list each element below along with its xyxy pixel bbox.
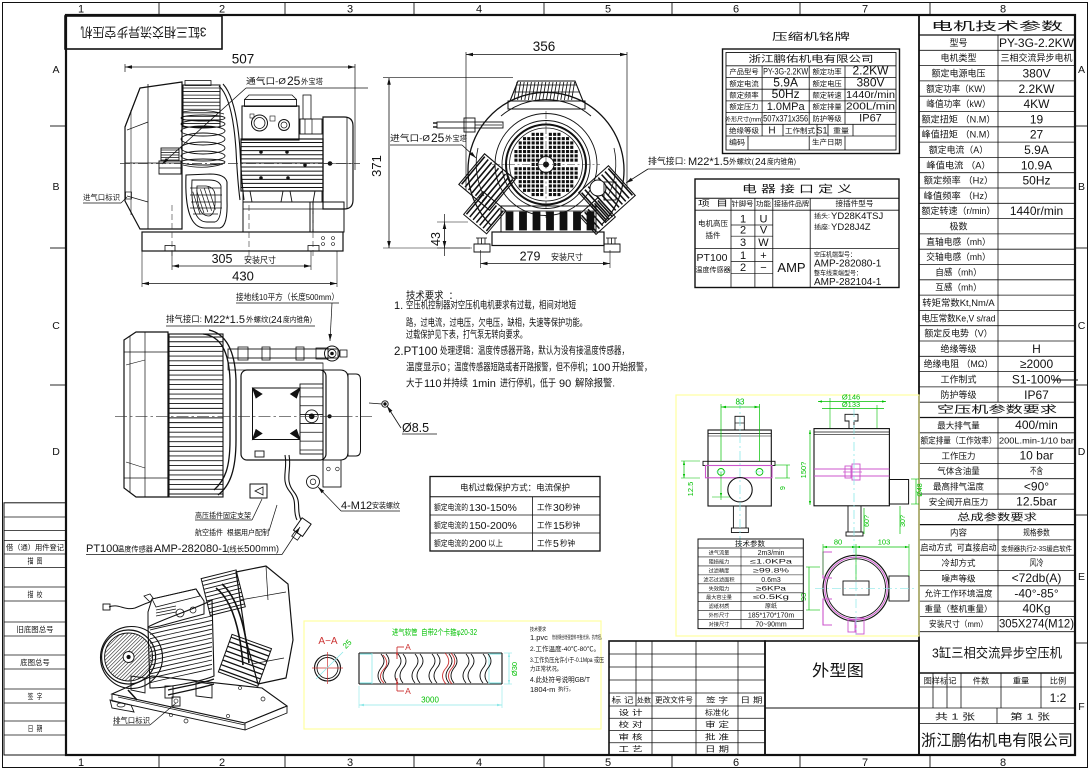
svg-text:日 期: 日 期 [741,696,763,705]
svg-text:执行。: 执行。 [558,685,574,693]
svg-text:旧底图总号: 旧底图总号 [17,625,54,634]
svg-text:比例: 比例 [1050,676,1066,686]
svg-text:进气口标识: 进气口标识 [83,192,120,202]
svg-text:排气口标识: 排气口标识 [113,715,150,725]
svg-text:6: 6 [733,757,739,769]
svg-text:507: 507 [232,52,255,67]
svg-text:描 校: 描 校 [28,590,43,599]
svg-text:70~90mm: 70~90mm [755,622,786,629]
svg-text:秒钟: 秒钟 [565,520,580,530]
svg-text:滤芯过滤面积: 滤芯过滤面积 [703,576,734,583]
svg-text:25: 25 [431,131,445,145]
svg-text:1440r/min: 1440r/min [846,89,895,101]
svg-text:压缩机铭牌: 压缩机铭牌 [772,31,851,43]
svg-text:Ø133: Ø133 [842,400,860,409]
svg-text:温度传感器: 温度传感器 [117,544,153,554]
svg-text:件数: 件数 [973,676,989,686]
svg-text:以上: 以上 [488,539,503,548]
svg-text:标 记: 标 记 [612,695,635,705]
svg-text:批 准: 批 准 [705,732,730,742]
svg-text:5: 5 [553,538,559,550]
svg-text:电压常数Ke,V s/rad: 电压常数Ke,V s/rad [922,312,996,323]
svg-text:度内锥角): 度内锥角) [283,314,312,324]
svg-text:4-M12: 4-M12 [341,500,372,512]
svg-text:2m3/min: 2m3/min [758,550,785,557]
svg-text:并持续: 并持续 [443,377,468,390]
svg-text:安装尺寸: 安装尺寸 [551,252,583,262]
svg-text:50Hz: 50Hz [1022,174,1050,188]
svg-text:额定频率: 额定频率 [729,91,758,100]
svg-text:+: + [760,250,766,262]
svg-text:D: D [52,446,60,458]
svg-text:电 器 接 口 定 义: 电 器 接 口 定 义 [742,183,852,196]
svg-text:峰值扭矩 （N.M）: 峰值扭矩 （N.M） [922,129,996,140]
svg-text:C: C [52,320,60,332]
svg-text:电机高压: 电机高压 [698,218,728,228]
svg-text:极数: 极数 [950,220,968,231]
svg-text:7: 7 [862,4,868,16]
svg-text:30?: 30? [900,515,907,527]
svg-text:最大容尘量: 最大容尘量 [706,594,732,601]
svg-text:24: 24 [271,315,283,326]
svg-text:H: H [768,126,775,137]
svg-text:滤纸材质: 滤纸材质 [709,603,730,610]
svg-text:400/min: 400/min [1015,418,1058,432]
svg-text:；温度传感器短路或者开路报警，但不停机；: ；温度传感器短路或者开路报警，但不停机； [447,361,592,374]
svg-text:外宝塔: 外宝塔 [301,76,323,86]
svg-text:额定电流的: 额定电流的 [434,538,468,548]
svg-text:浙江鹏佑机电有限公司: 浙江鹏佑机电有限公司 [749,53,874,64]
svg-text:YD28J4Z: YD28J4Z [831,222,871,233]
svg-text:电机过载保护方式：电流保护: 电机过载保护方式：电流保护 [460,483,570,493]
svg-text:10 bar: 10 bar [1019,449,1053,463]
svg-text:200L.min-1/10 bar: 200L.min-1/10 bar [999,435,1074,445]
svg-text:5: 5 [605,757,611,769]
svg-text:审 定: 审 定 [705,719,730,729]
svg-text:冷却方式: 冷却方式 [942,558,976,568]
svg-text:≥6KPa: ≥6KPa [756,586,787,592]
svg-text:日 期: 日 期 [28,724,43,733]
svg-text:外型图: 外型图 [812,662,864,680]
svg-text:安装尺寸（mm）: 安装尺寸（mm） [929,619,988,629]
svg-text:安装螺纹: 安装螺纹 [372,500,400,510]
svg-text:356: 356 [533,39,556,54]
svg-text:3: 3 [740,237,746,249]
svg-text:2: 2 [219,757,225,769]
svg-text:开始报警，: 开始报警， [612,361,652,374]
svg-text:150-200%: 150-200% [469,520,517,532]
svg-text:9: 9 [780,486,787,490]
svg-text:自感（mh）: 自感（mh） [935,266,981,277]
svg-text:原纸: 原纸 [765,602,777,610]
svg-text:8: 8 [1000,4,1006,16]
svg-text:U: U [760,214,768,226]
svg-text:371: 371 [369,155,384,177]
svg-text:阻损能力: 阻损能力 [709,558,730,565]
svg-text:80: 80 [834,538,842,547]
svg-text:A: A [1078,64,1085,76]
svg-text:AMP-282104-1: AMP-282104-1 [814,277,882,288]
svg-text:B: B [52,181,59,193]
svg-text:AMP-282080-1: AMP-282080-1 [814,259,882,270]
svg-text:整车线束端型号：: 整车线束端型号： [814,268,862,277]
svg-text:接地线10平方（长度500mm）: 接地线10平方（长度500mm） [236,292,339,302]
svg-text:19: 19 [1030,112,1044,126]
svg-text:力正常状况。: 力正常状况。 [530,665,562,673]
svg-text:更改文件号: 更改文件号 [655,695,693,705]
svg-text:<90°: <90° [1024,479,1049,493]
svg-text:3000: 3000 [421,696,439,705]
svg-text:6: 6 [733,4,739,16]
svg-text:430: 430 [232,269,254,284]
svg-text:允许工作环境温度: 允许工作环境温度 [925,589,993,599]
svg-text:过滤精度: 过滤精度 [709,567,730,574]
svg-text:型号: 型号 [950,38,968,48]
svg-text:M22*1.5: M22*1.5 [688,156,729,168]
svg-text:E: E [1078,571,1085,583]
svg-text:S1: S1 [816,126,827,136]
svg-text:103: 103 [878,538,891,547]
svg-text:100: 100 [592,362,610,374]
svg-text:对接尺寸: 对接尺寸 [709,621,730,628]
svg-text:工作: 工作 [537,538,552,548]
svg-text:工作制式: 工作制式 [785,126,815,135]
svg-text:空压机参数要求: 空压机参数要求 [937,403,1057,416]
svg-text:安全阀开启压力: 安全阀开启压力 [929,497,989,507]
svg-text:2: 2 [219,4,225,16]
svg-text:1: 1 [78,757,84,769]
svg-text:507x371x356: 507x371x356 [763,113,808,124]
svg-text:1.0MPa: 1.0MPa [767,101,806,113]
svg-text:B: B [1078,181,1085,193]
svg-text:W: W [758,237,769,249]
svg-text:秒钟: 秒钟 [560,538,575,548]
svg-text:功能: 功能 [756,199,771,208]
svg-text:气体含油量: 气体含油量 [937,466,980,476]
svg-text:失效阻力: 失效阻力 [709,585,730,592]
svg-text:额定功率（KW）: 额定功率（KW） [926,83,990,94]
svg-text:≥2000: ≥2000 [1020,357,1054,371]
svg-text:额定转速: 额定转速 [813,91,842,100]
svg-text:130-150%: 130-150% [469,502,517,514]
svg-text:外螺纹(: 外螺纹( [729,156,754,166]
svg-text:浙江鹏佑机电有限公司: 浙江鹏佑机电有限公司 [921,732,1073,750]
svg-text:A−A: A−A [318,636,338,647]
svg-text:200L/min: 200L/min [846,101,895,113]
svg-text:电机类型: 电机类型 [941,52,977,63]
svg-text:IP67: IP67 [859,113,882,125]
svg-text:工作压力: 工作压力 [942,451,976,461]
svg-text:空压机端型号：: 空压机端型号： [814,250,856,259]
svg-text:校 对: 校 对 [619,719,644,729]
svg-text:总成参数要求: 总成参数要求 [957,511,1038,523]
svg-text:标准化: 标准化 [705,707,730,717]
svg-text:185*170*170m: 185*170*170m [748,613,794,620]
svg-text:变频器执行2-3S缓启软件: 变频器执行2-3S缓启软件 [1001,544,1072,553]
svg-text:绝缘等级: 绝缘等级 [729,126,759,135]
svg-text:1440r/min: 1440r/min [1010,204,1063,218]
svg-text:150?: 150? [799,462,808,479]
svg-text:1804-m: 1804-m [530,685,555,694]
svg-text:Ø48: Ø48 [917,483,924,496]
svg-text:插件: 插件 [706,230,721,240]
svg-text:3: 3 [347,757,353,769]
svg-text:外形尺寸(mm): 外形尺寸(mm) [725,116,763,124]
svg-text:技术要求: 技术要求 [530,626,546,633]
svg-text:60?: 60? [864,515,871,527]
svg-text:3: 3 [347,4,353,16]
svg-text:Ø8.5: Ø8.5 [402,421,429,435]
svg-text:V: V [760,225,768,237]
svg-text:额定电流: 额定电流 [729,79,758,88]
svg-text:305X274(M12): 305X274(M12) [999,618,1074,630]
svg-text:F: F [1078,701,1084,713]
svg-text:IP67: IP67 [1024,388,1049,402]
svg-text:互感（mh）: 互感（mh） [935,282,981,293]
svg-text:25: 25 [287,74,301,88]
svg-text:排气接口:: 排气接口: [648,156,686,166]
svg-text:最高排气温度: 最高排气温度 [933,482,984,492]
svg-text:大于: 大于 [406,377,423,390]
svg-text:通气口-Ø: 通气口-Ø [246,76,286,86]
svg-text:额定扭矩 （N.M）: 额定扭矩 （N.M） [922,113,996,124]
svg-text:共 1 张: 共 1 张 [935,712,976,722]
svg-text:5.9A: 5.9A [1024,143,1049,157]
svg-text:10.9A: 10.9A [1021,158,1052,172]
svg-text:50Hz: 50Hz [772,87,800,101]
svg-text:3缸三相交流异步空压机: 3缸三相交流异步空压机 [932,645,1062,660]
svg-text:电机技术参数: 电机技术参数 [931,19,1064,33]
svg-text:工 艺: 工 艺 [619,745,643,754]
svg-text:4: 4 [476,757,482,769]
svg-text:规格参数: 规格参数 [1023,528,1050,538]
svg-text:380V: 380V [856,75,884,89]
svg-text:D: D [1078,446,1086,458]
svg-text:YD28K4TSJ: YD28K4TSJ [831,211,884,222]
svg-text:防护等级: 防护等级 [941,389,977,400]
svg-text:H: H [1032,342,1041,356]
svg-text:排气接口:: 排气接口: [166,314,202,324]
svg-text:200: 200 [469,538,487,550]
svg-text:绝缘电阻 （MΩ）: 绝缘电阻 （MΩ） [924,358,994,369]
svg-text:43: 43 [429,232,443,246]
svg-text:27: 27 [1030,128,1044,142]
svg-text:描 图: 描 图 [28,557,43,566]
svg-text:额定转速（r/min）: 额定转速（r/min） [922,205,996,216]
svg-text:83: 83 [736,398,745,407]
svg-text:A: A [52,64,59,76]
svg-text:管道钢丝增强塑料平整光滑，抗弯扭。: 管道钢丝增强塑料平整光滑，抗弯扭。 [552,634,604,641]
svg-text:借（通）用件登记: 借（通）用件登记 [6,543,64,552]
svg-text:工作: 工作 [537,520,552,530]
svg-text:2: 2 [740,262,746,274]
svg-text:进气流量: 进气流量 [709,549,730,556]
svg-text:额定压力: 额定压力 [729,102,758,111]
svg-text:PY-3G-2.2KW: PY-3G-2.2KW [999,36,1075,50]
svg-text:1:2: 1:2 [1050,691,1067,705]
svg-text:PT100: PT100 [697,252,728,264]
svg-text:空压机控制器对空压机电机要求有过载，相间对地短: 空压机控制器对空压机电机要求有过载，相间对地短 [406,299,576,312]
svg-text:温度显示: 温度显示 [406,361,440,374]
svg-text:PT100: PT100 [86,543,118,555]
svg-text:500: 500 [244,544,261,555]
svg-text:A: A [405,686,411,696]
svg-text:绝缘等级: 绝缘等级 [941,343,977,354]
svg-text:直轴电感（mh）: 直轴电感（mh） [926,236,990,247]
svg-text:图样标记: 图样标记 [924,676,957,686]
svg-text:项 目: 项 目 [698,199,728,208]
svg-text:工作: 工作 [537,502,552,512]
svg-text:审 核: 审 核 [619,732,644,742]
svg-text:产品型号: 产品型号 [729,67,758,76]
svg-text:额定排量（工作效率）: 额定排量（工作效率） [921,436,997,446]
svg-text:0: 0 [440,362,446,374]
svg-text:2.2KW: 2.2KW [1018,82,1055,96]
svg-text:110: 110 [424,378,442,390]
svg-text:0.6m3: 0.6m3 [761,577,781,584]
svg-text:≤1.0KPa: ≤1.0KPa [750,559,793,565]
svg-text:12.5bar: 12.5bar [1016,495,1057,509]
svg-text:插座:: 插座: [814,222,830,231]
svg-text:高压插件固定支架: 高压插件固定支架 [195,510,251,520]
svg-text:7: 7 [862,757,868,769]
svg-text:转矩常数Kt,Nm/A: 转矩常数Kt,Nm/A [922,297,994,308]
svg-text:8: 8 [1000,757,1006,769]
svg-text:峰值频率 （Hz）: 峰值频率 （Hz） [924,190,994,201]
svg-text:进行停机，低于: 进行停机，低于 [500,377,556,390]
svg-text:AMP: AMP [777,260,805,275]
svg-text:外宝塔: 外宝塔 [445,133,467,143]
svg-text:3.工作负压允许小于-0.1Mpa 或压: 3.工作负压允许小于-0.1Mpa 或压 [530,655,604,664]
svg-text:解除报警.: 解除报警. [575,377,615,390]
svg-text:重量: 重量 [1013,676,1029,686]
svg-text:C: C [1078,320,1086,332]
svg-text:技术参数: 技术参数 [735,539,765,548]
svg-text:2.工作温度-40℃-80℃。: 2.工作温度-40℃-80℃。 [530,644,600,653]
svg-text:1.pvc: 1.pvc [530,633,548,642]
svg-text:1.: 1. [394,300,403,312]
svg-text:进气软管 自带2个卡箍φ20-32: 进气软管 自带2个卡箍φ20-32 [392,627,477,637]
svg-text:内容: 内容 [950,527,967,537]
svg-text:接插件型号: 接插件型号 [836,198,874,208]
svg-text:额定频率 （Hz）: 额定频率 （Hz） [924,175,994,186]
svg-text:−: − [760,262,766,274]
svg-text:交轴电感（mh）: 交轴电感（mh） [926,251,990,262]
svg-text:2.PT100: 2.PT100 [394,346,437,358]
svg-text:M22*1.5: M22*1.5 [204,314,245,326]
svg-text:额定反电势（V）: 额定反电势（V） [924,328,992,339]
svg-text:额定排量: 额定排量 [813,102,842,111]
svg-text:插头:: 插头: [814,211,830,220]
svg-text:额定功率: 额定功率 [813,67,842,76]
svg-text:额定电流的: 额定电流的 [434,520,468,530]
svg-text:工作制式: 工作制式 [941,373,977,384]
svg-text:1min: 1min [472,378,496,390]
svg-text:不含: 不含 [1030,465,1043,476]
svg-text:4KW: 4KW [1023,97,1050,111]
svg-text:最大排气量: 最大排气量 [937,420,980,430]
svg-text:重量: 重量 [833,127,849,135]
svg-text:3缸三相交流异步空压机: 3缸三相交流异步空压机 [81,25,207,40]
svg-text:温度传感器: 温度传感器 [696,265,731,274]
svg-text:外螺纹(: 外螺纹( [246,314,271,324]
svg-text:<72db(A): <72db(A) [1012,571,1062,585]
svg-text:航空插件 根据用户配制: 航空插件 根据用户配制 [195,527,269,537]
svg-text:第 1 张: 第 1 张 [1010,712,1051,722]
svg-text:度内锥角): 度内锥角) [767,156,796,166]
svg-text:≥99.8%: ≥99.8% [753,568,790,574]
svg-text:额定电源电压: 额定电源电压 [932,67,986,78]
svg-text:S1-100%: S1-100% [1012,372,1062,386]
svg-text:重量（整机重量）: 重量（整机重量） [925,604,993,614]
svg-text:额定电流（A）: 额定电流（A） [929,144,988,155]
svg-text:防护等级: 防护等级 [813,114,842,123]
svg-text:峰值电流 （A）: 峰值电流 （A） [926,159,990,170]
svg-text:1: 1 [740,250,746,262]
svg-text:12.5: 12.5 [686,482,695,497]
svg-text:签 字: 签 字 [706,695,728,705]
svg-text:额定电压: 额定电压 [813,79,842,88]
svg-text:日 期: 日 期 [705,745,729,754]
svg-text:40Kg: 40Kg [1022,602,1050,616]
svg-text:2: 2 [740,225,746,237]
svg-text:处理逻辑：温度传感器开路，默认为没有接温度传感器，: 处理逻辑：温度传感器开路，默认为没有接温度传感器， [440,344,629,357]
svg-text:1: 1 [740,214,746,226]
svg-text:启动方式 可直接启动: 启动方式 可直接启动 [921,543,997,553]
svg-text:接插件品牌: 接插件品牌 [774,199,809,208]
svg-text:安装尺寸: 安装尺寸 [244,255,276,265]
svg-text:三相交流异步电机: 三相交流异步电机 [1001,52,1073,63]
svg-text:签 字: 签 字 [28,692,43,701]
svg-text:279: 279 [520,250,541,264]
svg-text:AMP-282080-1: AMP-282080-1 [154,543,228,555]
svg-text:进气口-Ø: 进气口-Ø [390,133,430,143]
svg-text:峰值功率（kW）: 峰值功率（kW） [926,98,990,109]
svg-text:Ø30: Ø30 [510,662,519,676]
svg-text:24: 24 [755,157,767,168]
svg-text:生产日期: 生产日期 [812,138,842,147]
svg-text:路，过电流，过电压，欠电压，缺相，失速等保护功能。: 路，过电流，过电压，欠电压，缺相，失速等保护功能。 [406,316,587,329]
svg-text:4: 4 [476,4,482,16]
svg-text:处数: 处数 [637,696,651,705]
svg-text:外形尺寸: 外形尺寸 [709,612,730,619]
svg-text:针脚号: 针脚号 [732,199,754,208]
svg-text:底图总号: 底图总号 [20,658,50,667]
svg-text:15: 15 [553,520,565,532]
svg-text:5: 5 [605,4,611,16]
svg-text:380V: 380V [1022,66,1050,80]
svg-text:设 计: 设 计 [619,707,644,717]
svg-text:90: 90 [559,378,571,390]
svg-text:额定电流的: 额定电流的 [434,502,468,512]
svg-text:噪声等级: 噪声等级 [942,573,976,583]
svg-text:305: 305 [212,252,233,266]
svg-text:4.此处符号说明GB/T: 4.此处符号说明GB/T [530,675,591,684]
svg-text:≤0.5Kg: ≤0.5Kg [753,595,789,601]
svg-text:(线长: (线长 [227,544,244,554]
svg-text:风冷: 风冷 [1029,557,1043,568]
svg-text:30: 30 [553,502,565,514]
svg-text:A: A [405,642,411,652]
svg-text:-40°-85°: -40°-85° [1014,586,1058,600]
svg-text:编码: 编码 [729,138,745,147]
svg-text:mm): mm) [261,544,279,554]
svg-text:秒钟: 秒钟 [565,502,580,512]
svg-text:1: 1 [78,4,84,16]
svg-text:过载保护见下表，打气泵无转向要求。: 过载保护见下表，打气泵无转向要求。 [406,328,527,341]
